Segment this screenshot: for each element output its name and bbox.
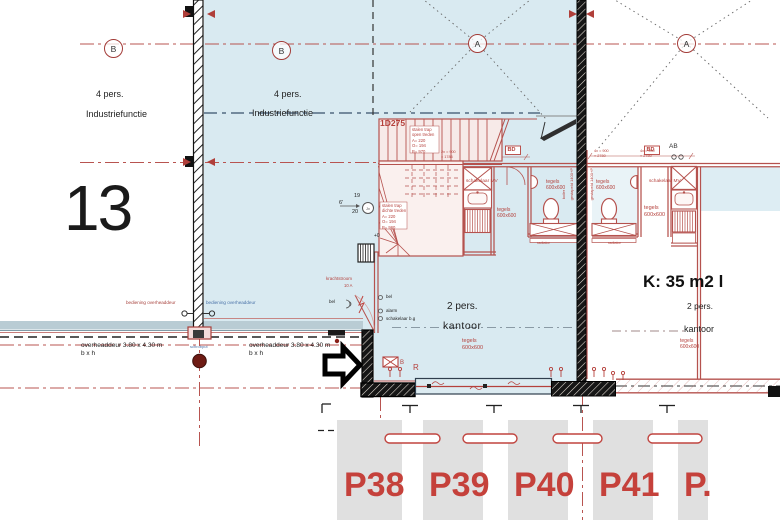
dim-shaft: 2x = 900 = 1786 [441,150,456,159]
schakelaar-mv-left: schakelaar MV [466,179,498,185]
overheaddeur-left-label: overheaddeur 3.80 x 4.30 m b x h [81,342,162,358]
overheaddeur-right-label: overheaddeur 3.80 x 4.30 m b x h [249,342,330,358]
kantoor-right-label: kantoor [684,324,714,335]
parking-space-p40: P40 [514,466,575,505]
b-label: B [400,360,404,368]
grid-letter: A [684,39,690,49]
right-wall [577,0,586,385]
unit-number: 13 [64,168,131,248]
unit-function: Industriefunctie [86,109,147,120]
parking-space-p41: P41 [599,466,660,505]
stair-note-20: 20 [352,209,358,216]
kantoor-persons: 2 pers. [447,301,478,314]
area-label: K: 35 m2 l [643,271,723,292]
stair-spec-upper: stalen trap open treden A= 220 O= 194 B=… [412,127,434,154]
stacked-right-label: gestapeld 1400+P [589,168,594,200]
radiator-right-label: radiator [608,241,621,246]
kantoor-tiles: tegels 600x600 [462,338,483,352]
grid-letter: B [111,44,117,54]
grid-marker-b-main: B [272,41,291,60]
shaft-tiles: tegels 600x600 [497,207,516,220]
stair-note-19: 19 [354,193,360,200]
hall-persons: 4 pers. [274,89,302,100]
radiator-icon-stair [358,244,374,262]
floor-plan-linework [0,0,780,520]
dim-right-2: 4x = 900 = 2780 [640,149,655,158]
stacked-left-label: gestapeld 1400+P [569,168,574,200]
schakelaar-mv-right: schakelaar MV [649,179,681,185]
bd-left-label: BD [508,147,516,154]
bediening-right-label: bediening overheaddeur [206,300,256,306]
schakelaar-bg-label: schakelaar b.g [386,316,415,322]
kantoor-right-tiles: tegels 600x600 [680,338,699,351]
radiator-left-label: radiator [537,241,550,246]
survey-marks [322,404,675,413]
stair-spec-lower: stalen trap dichte treden A= 220 O= 194 … [382,203,406,230]
floor-plan-page: B B A A 13 4 pers. Industriefunctie 4 pe… [0,0,780,520]
stair-note-jv-circle: Jv [362,202,374,214]
toilet-icon [544,199,559,220]
drain-icon [193,354,207,368]
krachtstroom-label: krachtstroom [326,276,352,282]
bel-label: bel [386,294,392,300]
parking-space-p39: P39 [429,466,490,505]
kantoor-right-persons: 2 pers. [687,301,713,312]
shaft-left [464,168,492,233]
bel-left-label: bel [329,299,335,305]
grid-marker-a-main: A [468,34,487,53]
alarm-label: alarm [386,308,397,314]
schrobput-label: schrobput [190,344,208,349]
unit-persons: 4 pers. [96,89,124,100]
boiler-label: boiler [562,190,567,199]
bediening-left-label: bediening overheaddeur [126,300,176,306]
grid-marker-a-right: A [677,34,696,53]
wc-right-tiles: tegels 600x600 [596,179,615,192]
grid-letter: A [475,39,481,49]
kantoor-label: kantoor [443,320,482,333]
stair-id: 1D275 [380,118,405,129]
hall-function: Industriefunctie [252,108,313,119]
level-mark: +0 [374,233,380,239]
grid-letter: B [279,46,285,56]
midroom-tiles: tegels 600x600 [644,205,665,219]
grid-marker-b-left: B [104,39,123,58]
parking-space-p42: P. [684,466,712,505]
toilet-icon [602,199,617,220]
ab-label: AB [669,143,678,151]
shaft-right [672,167,697,244]
stair-note-6: 6' [339,200,343,207]
dim-right-1: 4x = 900 = 2780 [594,149,609,158]
r-label: R [413,363,419,373]
amps-label: 10 A [344,283,352,288]
parking-space-p38: P38 [344,466,405,505]
jv-label: Jv [366,206,370,211]
